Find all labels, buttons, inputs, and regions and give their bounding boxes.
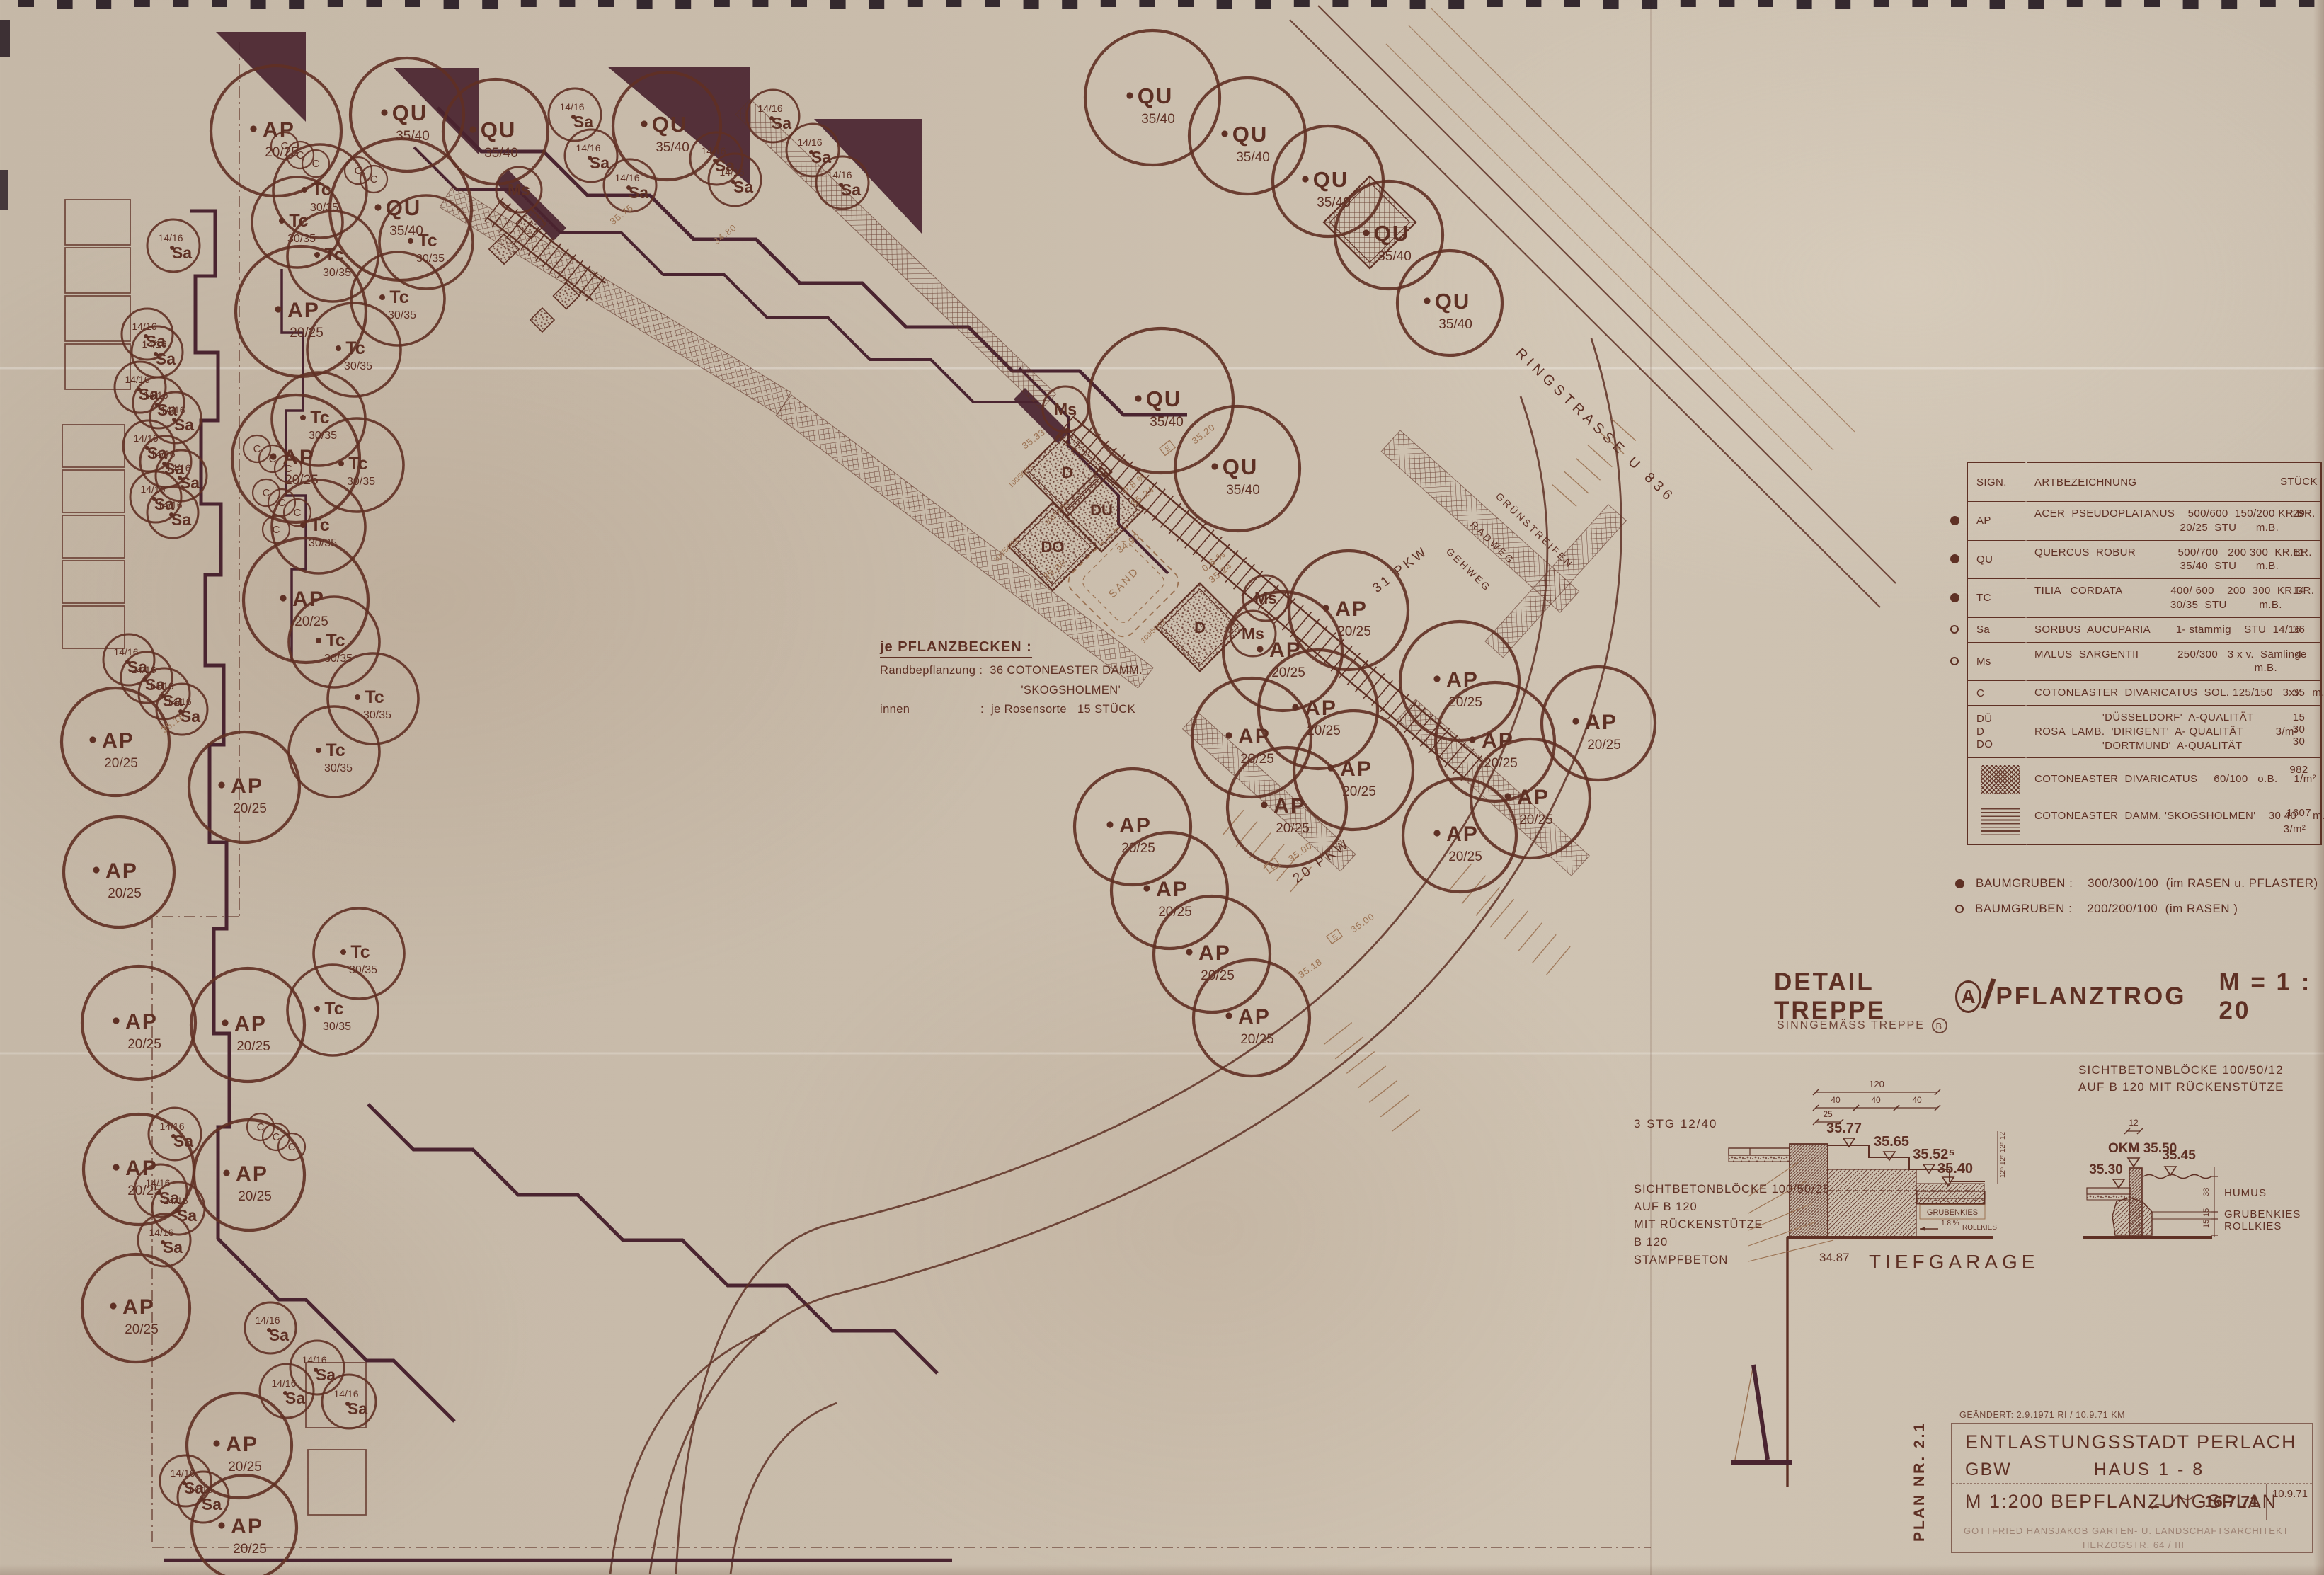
legend-row: MsMALUS SARGENTII 250/300 3 x v. Sämling…: [1942, 642, 2323, 681]
tree-symbol-sa: 14/16Sa: [138, 1214, 190, 1266]
tree-symbol-c: C: [247, 1113, 274, 1140]
svg-text:Sa: Sa: [172, 244, 192, 262]
svg-text:AP: AP: [1517, 786, 1550, 809]
svg-text:30/35: 30/35: [309, 537, 337, 549]
baumgruben-note-text: BAUMGRUBEN : 200/200/100 (im RASEN ): [1975, 902, 2238, 916]
svg-text:14/16: 14/16: [166, 696, 191, 707]
tree-pit-small-icon: [1942, 617, 1967, 642]
plan-date: 16.7.71: [2197, 1484, 2266, 1520]
svg-text:14/16: 14/16: [163, 1195, 188, 1206]
tree-pit-small-icon: [1942, 642, 1967, 681]
svg-text:AP: AP: [231, 1515, 263, 1538]
svg-text:20/25: 20/25: [228, 1460, 262, 1474]
legend-sign: TC: [1967, 578, 2027, 617]
legend-header-sign: SIGN.: [1967, 462, 2027, 501]
legend-no-marker: [1942, 801, 1967, 845]
tree-symbol-ap: AP20/25: [1154, 896, 1270, 1012]
signature-icon: [2148, 1484, 2197, 1520]
stair-a-marker-icon: A: [1955, 980, 1982, 1013]
svg-text:Ms: Ms: [508, 181, 530, 199]
svg-text:QU: QU: [1232, 122, 1269, 147]
tree-pit-large-icon: [1942, 540, 1967, 579]
legend-row: CCOTONEASTER DIVARICATUS SOL. 125/150 3x…: [1942, 680, 2323, 705]
svg-text:Ms: Ms: [1254, 589, 1277, 607]
svg-text:QU: QU: [392, 101, 428, 125]
svg-text:30/35: 30/35: [388, 309, 416, 321]
svg-text:GRUBENKIES: GRUBENKIES: [2224, 1208, 2301, 1220]
tree-symbol-sa: 14/16Sa: [245, 1302, 296, 1353]
legend-row: COTONEASTER DIVARICATUS 60/100 o.B. 1/m²…: [1942, 757, 2323, 801]
svg-text:40: 40: [1912, 1095, 1922, 1105]
svg-text:Sa: Sa: [590, 154, 609, 172]
svg-text:Sa: Sa: [177, 1206, 197, 1225]
concrete-block-label-line: B 120: [1634, 1234, 1830, 1252]
svg-text:TIEFGARAGE: TIEFGARAGE: [1869, 1251, 2039, 1273]
tree-symbol-qu: QU35/40: [1397, 251, 1502, 355]
client-label: GBW: [1965, 1460, 2012, 1480]
svg-text:Sa: Sa: [573, 113, 593, 131]
svg-text:14/16: 14/16: [157, 499, 182, 510]
svg-text:20/25: 20/25: [233, 1542, 267, 1557]
concrete-block-label-line: AUF B 120: [1634, 1198, 1830, 1216]
svg-text:20/25: 20/25: [125, 1322, 159, 1337]
svg-text:30/35: 30/35: [324, 762, 353, 774]
svg-text:20/25: 20/25: [1158, 905, 1192, 920]
planter-detail-heading-line2: AUF B 120 MIT RÜCKENSTÜTZE: [2078, 1079, 2284, 1096]
street-name-label: RINGSTRASSE U 836: [1513, 345, 1678, 506]
svg-text:120: 120: [1869, 1079, 1884, 1089]
legend-no-marker: [1942, 705, 1967, 757]
svg-text:AP: AP: [125, 1010, 158, 1033]
svg-text:AP: AP: [1446, 823, 1479, 846]
tree-symbol-tc: Tc30/35: [314, 908, 404, 999]
legend-sign: [1967, 801, 2027, 845]
svg-text:35.77: 35.77: [1826, 1121, 1862, 1136]
svg-text:Sa: Sa: [156, 350, 176, 368]
planter-edge-detail-drawing: 12OKM 35.5035.4535.3038HUMUS15GRUBENKIES…: [2083, 1118, 2301, 1239]
svg-text:20/25: 20/25: [104, 756, 138, 771]
svg-text:Tc: Tc: [324, 999, 343, 1019]
svg-text:20/25: 20/25: [1519, 813, 1553, 827]
svg-text:14/16: 14/16: [145, 1177, 170, 1189]
tree-symbol-qu: QU35/40: [1085, 30, 1220, 165]
tree-symbol-c: C: [302, 150, 329, 177]
svg-text:35/40: 35/40: [1236, 150, 1270, 165]
svg-text:DO: DO: [1041, 538, 1065, 556]
tree-symbol-ap: AP20/25: [1075, 769, 1191, 885]
svg-text:14/16: 14/16: [166, 462, 190, 474]
svg-text:AP: AP: [231, 774, 263, 798]
svg-text:20/25: 20/25: [236, 1039, 270, 1054]
svg-text:Sa: Sa: [171, 510, 191, 529]
svg-text:Ms: Ms: [1242, 624, 1264, 643]
legend-row: DÜDDO 'DÜSSELDORF' A-QUALITÄTROSA LAMB. …: [1942, 705, 2323, 757]
svg-text:AP: AP: [1119, 814, 1152, 837]
svg-text:14/16: 14/16: [302, 1354, 326, 1365]
stair-count-label: 3 STG 12/40: [1634, 1117, 1717, 1131]
svg-text:20/25: 20/25: [294, 614, 328, 629]
detail-scale-label: M = 1 : 20: [2219, 968, 2324, 1025]
detail-title-rest: PFLANZTROG: [1996, 983, 2186, 1011]
svg-text:AP: AP: [1238, 725, 1271, 748]
legend-sign: AP: [1967, 501, 2027, 540]
tree-symbol-ap: AP20/25: [1111, 832, 1227, 949]
tree-symbol-sa: 14/16Sa: [147, 219, 200, 272]
svg-text:12⁵: 12⁵: [1999, 1142, 2007, 1152]
pflanzbecken-note-line: Randbepflanzung : 36 COTONEASTER DAMM.: [880, 663, 1213, 678]
tree-pit-large-icon: [1942, 501, 1967, 540]
revision-date: 10.9.71: [2267, 1484, 2312, 1520]
svg-text:30/35: 30/35: [323, 1021, 351, 1033]
svg-text:14/16: 14/16: [271, 1378, 296, 1389]
features-layer: D100/50/12DÜ100/50/12DO100/50/12D100/50/…: [489, 176, 1416, 685]
svg-text:35/40: 35/40: [1438, 317, 1472, 332]
svg-text:40: 40: [1871, 1095, 1881, 1105]
legend-species-description: COTONEASTER DIVARICATUS SOL. 125/150 3xv…: [2027, 680, 2277, 705]
street-strip-label: GEHWEG: [1444, 546, 1494, 594]
north-arrow-icon: [1731, 1365, 1792, 1462]
tree-symbol-ap: AP20/25: [1542, 667, 1655, 780]
svg-text:AP: AP: [1198, 941, 1231, 965]
trees-layer: AP20/25AP20/25AP20/25AP20/25AP20/25AP20/…: [62, 30, 1655, 1575]
architect-stamp: GOTTFRIED HANSJAKOB GARTEN- U. LANDSCHAF…: [1952, 1520, 2312, 1552]
svg-text:20/25: 20/25: [1276, 821, 1310, 836]
svg-text:Sa: Sa: [772, 114, 791, 132]
tree-symbol-qu: QU35/40: [1175, 406, 1300, 531]
svg-text:QU: QU: [1146, 386, 1182, 411]
revision-note: GEÄNDERT: 2.9.1971 RI / 10.9.71 KM: [1959, 1410, 2125, 1420]
svg-text:AP: AP: [102, 729, 134, 752]
tree-symbol-sa: 14/16Sa: [549, 88, 601, 141]
detail-title-slash: /: [1980, 970, 1998, 1019]
legend-species-description: SORBUS AUCUPARIA 1- stämmig STU 14/16: [2027, 617, 2277, 642]
svg-text:14/16: 14/16: [614, 172, 639, 183]
svg-text:E: E: [1164, 445, 1172, 454]
elevation-label: 34.80: [711, 222, 739, 246]
svg-text:QU: QU: [1313, 167, 1349, 192]
svg-text:Tc: Tc: [350, 942, 370, 962]
tree-symbol-ap: AP20/25: [1294, 711, 1413, 830]
svg-text:QU: QU: [1223, 454, 1259, 479]
svg-text:AP: AP: [122, 1295, 155, 1319]
pflanzbecken-note-lines: Randbepflanzung : 36 COTONEASTER DAMM. '…: [880, 663, 1213, 717]
legend-species-description: 'DÜSSELDORF' A-QUALITÄTROSA LAMB. 'DIRIG…: [2027, 705, 2277, 757]
svg-text:14/16: 14/16: [559, 101, 584, 113]
svg-text:14/16: 14/16: [160, 404, 185, 416]
svg-text:20/25: 20/25: [238, 1189, 272, 1204]
svg-text:Sa: Sa: [348, 1399, 367, 1418]
svg-text:C: C: [312, 158, 320, 170]
sheet-marks-layer: [18, 0, 2314, 9]
tree-symbol-ap: AP20/25: [62, 688, 169, 796]
svg-text:Sa: Sa: [733, 178, 753, 196]
pflanzbecken-note-line: 'SKOGSHOLMEN': [880, 683, 1213, 698]
svg-text:QU: QU: [652, 112, 688, 137]
svg-text:14/16: 14/16: [701, 145, 726, 156]
elevation-label: 35.18: [1296, 956, 1324, 980]
svg-text:AP: AP: [226, 1433, 258, 1456]
svg-text:C: C: [285, 463, 292, 475]
pflanzbecken-note: je PFLANZBECKEN : Randbepflanzung : 36 C…: [880, 639, 1213, 717]
pflanzbecken-note-title: je PFLANZBECKEN :: [880, 639, 1032, 658]
svg-text:Tc: Tc: [348, 454, 367, 474]
planter-detail-heading-line1: SICHTBETONBLÖCKE 100/50/12: [2078, 1062, 2284, 1079]
svg-text:C: C: [370, 173, 378, 185]
svg-text:14/16: 14/16: [827, 169, 852, 181]
svg-text:Tc: Tc: [418, 231, 437, 251]
svg-text:AP: AP: [1585, 711, 1618, 734]
legend-sign: [1967, 757, 2027, 801]
baumgruben-notes: BAUMGRUBEN : 300/300/100 (im RASEN u. PF…: [1955, 876, 2318, 927]
elevation-marker: E: [1160, 440, 1176, 456]
svg-text:14/16: 14/16: [576, 142, 600, 154]
svg-text:D: D: [1062, 464, 1073, 481]
crosshatch-swatch-icon: [1981, 765, 2020, 794]
svg-text:ROLLKIES: ROLLKIES: [1962, 1224, 1997, 1232]
svg-text:20/25: 20/25: [108, 886, 142, 901]
svg-text:30/35: 30/35: [323, 267, 351, 279]
svg-text:14/16: 14/16: [158, 232, 183, 244]
svg-text:E: E: [1331, 933, 1339, 942]
legend-sign: Sa: [1967, 617, 2027, 642]
concrete-block-labels: SICHTBETONBLÖCKE 100/50/25AUF B 120MIT R…: [1634, 1181, 1830, 1269]
svg-text:14/16: 14/16: [255, 1315, 280, 1326]
tree-symbol-sa: 14/16Sa: [322, 1375, 376, 1428]
svg-text:14/16: 14/16: [149, 1227, 173, 1238]
detail-subtitle-text: SINNGEMÄSS TREPPE: [1777, 1019, 1925, 1032]
svg-text:Tc: Tc: [310, 515, 329, 535]
svg-text:Sa: Sa: [173, 1132, 193, 1150]
tree-symbol-c: C: [268, 489, 295, 516]
svg-text:40: 40: [1831, 1095, 1841, 1105]
tree-symbol-ap: AP20/25: [82, 966, 195, 1079]
tree-symbol-c: C: [278, 1133, 305, 1160]
svg-text:C: C: [294, 507, 302, 519]
legend-no-marker: [1942, 757, 1967, 801]
svg-text:12: 12: [2129, 1118, 2139, 1128]
parking-count-label: 31 PKW: [1370, 544, 1431, 596]
svg-text:35.30: 35.30: [2089, 1162, 2123, 1177]
legend-row: COTONEASTER DAMM. 'SKOGSHOLMEN' 30 40 m.…: [1942, 801, 2323, 845]
concrete-block-label-line: MIT RÜCKENSTÜTZE: [1634, 1216, 1830, 1234]
svg-text:Tc: Tc: [310, 408, 329, 428]
svg-text:Tc: Tc: [326, 631, 345, 651]
svg-text:35/40: 35/40: [1150, 415, 1184, 430]
svg-text:AP: AP: [1238, 1005, 1271, 1029]
tree-symbol-sa: 14/16Sa: [149, 1108, 201, 1160]
plan-number-label: PLAN NR. 2.1: [1911, 1409, 1933, 1554]
legend-header-art: ARTBEZEICHNUNG: [2027, 462, 2277, 501]
svg-text:20/25: 20/25: [233, 801, 267, 816]
svg-text:DÜ: DÜ: [1090, 501, 1113, 519]
svg-text:35.52⁵: 35.52⁵: [1913, 1147, 1954, 1162]
svg-text:C: C: [273, 524, 280, 536]
svg-text:35/40: 35/40: [1141, 112, 1175, 127]
tree-symbol-ap: AP20/25: [82, 1254, 190, 1362]
svg-text:30/35: 30/35: [324, 653, 353, 665]
tree-pit-large-icon: [1942, 578, 1967, 617]
svg-text:AP: AP: [234, 1012, 267, 1036]
svg-text:12: 12: [1999, 1131, 2007, 1140]
svg-text:15: 15: [2202, 1208, 2211, 1217]
svg-text:AP: AP: [236, 1162, 268, 1186]
legend-no-marker: [1942, 680, 1967, 705]
svg-text:QU: QU: [1435, 289, 1471, 314]
svg-text:20/25: 20/25: [1448, 849, 1482, 864]
svg-text:14/16: 14/16: [719, 166, 744, 178]
svg-text:AP: AP: [287, 299, 320, 322]
svg-text:30/35: 30/35: [344, 360, 372, 372]
svg-text:Sa: Sa: [285, 1389, 305, 1407]
legend-sign: QU: [1967, 540, 2027, 579]
tree-symbol-ap: AP20/25: [194, 1120, 304, 1230]
svg-text:20/25: 20/25: [1337, 624, 1371, 639]
tree-symbol-sa: 14/16Sa: [565, 130, 617, 182]
legend-row: TCTILIA CORDATA 400/ 600 200 300 KR.BR. …: [1942, 578, 2323, 617]
svg-text:D: D: [1194, 619, 1206, 636]
planter-detail-heading: SICHTBETONBLÖCKE 100/50/12 AUF B 120 MIT…: [2078, 1062, 2284, 1096]
svg-text:14/16: 14/16: [142, 338, 166, 350]
svg-text:Sa: Sa: [629, 183, 648, 202]
svg-text:Sa: Sa: [163, 1238, 183, 1256]
svg-text:Sa: Sa: [269, 1326, 289, 1344]
svg-text:14/16: 14/16: [757, 103, 782, 114]
legend-species-description: COTONEASTER DAMM. 'SKOGSHOLMEN' 30 40 m.…: [2027, 801, 2277, 845]
tree-symbol-ms: Ms: [1043, 386, 1088, 432]
concrete-block-label-line: SICHTBETONBLÖCKE 100/50/25: [1634, 1181, 1830, 1198]
elevation-marker: E: [1327, 929, 1343, 944]
svg-text:Tc: Tc: [326, 740, 345, 760]
architect-name-line: GOTTFRIED HANSJAKOB GARTEN- U. LANDSCHAF…: [1964, 1524, 2303, 1538]
tree-symbol-c: C: [244, 435, 270, 462]
svg-text:AP: AP: [263, 118, 295, 142]
legend-sign: DÜDDO: [1967, 705, 2027, 757]
tree-pit-small-icon: [1955, 905, 1964, 913]
svg-text:C: C: [288, 1141, 296, 1153]
svg-text:Tc: Tc: [345, 338, 365, 358]
svg-text:Tc: Tc: [324, 245, 343, 265]
tree-symbol-ap: AP20/25: [1403, 779, 1516, 892]
svg-text:HUMUS: HUMUS: [2224, 1187, 2267, 1199]
pflanzbecken-note-line: innen : je Rosensorte 15 STÜCK: [880, 702, 1213, 717]
svg-text:QU: QU: [1374, 221, 1410, 246]
svg-text:GRUBENKIES: GRUBENKIES: [1927, 1208, 1978, 1217]
small-planter: [530, 308, 554, 332]
svg-text:SAND: SAND: [1106, 565, 1142, 600]
legend-row: QUQUERCUS ROBUR 500/700 200 300 KR.BR. 3…: [1942, 540, 2323, 579]
detail-section-title: DETAIL TREPPE A / PFLANZTROG M = 1 : 20: [1774, 968, 2324, 1025]
architect-address-line: HERZOGSTR. 64 / III: [1964, 1538, 2303, 1552]
svg-text:Tc: Tc: [389, 287, 408, 307]
svg-text:35/40: 35/40: [484, 146, 518, 161]
legend-header-row: SIGN.ARTBEZEICHNUNGSTÜCK: [1942, 462, 2323, 501]
svg-text:AP: AP: [1273, 794, 1306, 818]
hlines-swatch-icon: [1981, 808, 2020, 837]
baumgruben-note-text: BAUMGRUBEN : 300/300/100 (im RASEN u. PF…: [1976, 876, 2318, 890]
tree-symbol-c: C: [253, 479, 280, 506]
title-block-project-row: ENTLASTUNGSSTADT PERLACH GBW HAUS 1 - 8: [1952, 1424, 2312, 1484]
svg-text:30/35: 30/35: [347, 476, 375, 488]
svg-text:20/25: 20/25: [1240, 1032, 1274, 1047]
svg-text:ROLLKIES: ROLLKIES: [2224, 1220, 2282, 1232]
svg-text:Sa: Sa: [841, 181, 861, 199]
house-range-label: HAUS 1 - 8: [2094, 1460, 2204, 1480]
svg-text:QU: QU: [386, 195, 422, 220]
detail-title-text: DETAIL TREPPE: [1774, 968, 1948, 1025]
svg-text:14/16: 14/16: [188, 1484, 212, 1495]
svg-text:12⁵: 12⁵: [1999, 1167, 2007, 1178]
legend-sign: C: [1967, 680, 2027, 705]
tree-symbol-ap: AP20/25: [1194, 960, 1310, 1076]
svg-text:QU: QU: [481, 118, 517, 142]
svg-text:20/25: 20/25: [1484, 756, 1518, 771]
plant-legend-table: SIGN.ARTBEZEICHNUNGSTÜCKAPACER PSEUDOPLA…: [1942, 462, 2323, 845]
elevation-label: 35.33: [1020, 426, 1048, 451]
svg-text:QU: QU: [1138, 84, 1174, 108]
svg-text:35/40: 35/40: [1378, 249, 1412, 264]
tree-symbol-ap: AP20/25: [1400, 622, 1519, 740]
elevation-label: 35.00: [1349, 911, 1376, 935]
svg-text:Sa: Sa: [202, 1495, 222, 1513]
legend-sign: Ms: [1967, 642, 2027, 681]
legend-row: SaSORBUS AUCUPARIA 1- stämmig STU 14/163…: [1942, 617, 2323, 642]
title-block: ENTLASTUNGSSTADT PERLACH GBW HAUS 1 - 8 …: [1951, 1423, 2313, 1553]
svg-text:14/16: 14/16: [797, 137, 822, 148]
svg-text:Sa: Sa: [811, 148, 831, 166]
svg-text:AP: AP: [1156, 878, 1189, 901]
svg-text:AP: AP: [1446, 668, 1479, 692]
scanned-planting-plan-sheet: { "palette":{"paper":"#c9bcab","ink":"#5…: [0, 0, 2324, 1575]
baumgruben-note: BAUMGRUBEN : 200/200/100 (im RASEN ): [1955, 902, 2318, 916]
concrete-block-label-line: STAMPFBETON: [1634, 1252, 1830, 1269]
tree-symbol-c: C: [345, 157, 372, 184]
sheet-edge-shade-bottom: [0, 1564, 2324, 1575]
svg-text:35.65: 35.65: [1874, 1134, 1909, 1150]
svg-text:35.45: 35.45: [2162, 1148, 2196, 1163]
tree-pit-large-icon: [1955, 879, 1964, 888]
stair-b-marker-icon: B: [1932, 1018, 1947, 1033]
svg-text:14/16: 14/16: [170, 1467, 195, 1479]
tree-symbol-ap: AP20/25: [64, 817, 174, 927]
tree-symbol-ap: AP20/25: [189, 732, 299, 842]
svg-text:15: 15: [2202, 1220, 2211, 1228]
detail-subtitle: SINNGEMÄSS TREPPE B: [1777, 1018, 1947, 1033]
svg-text:35/40: 35/40: [1226, 483, 1260, 498]
legend-species-description: MALUS SARGENTII 250/300 3 x v. Sämlinge …: [2027, 642, 2277, 681]
svg-text:14/16: 14/16: [159, 1121, 184, 1132]
svg-text:35/40: 35/40: [656, 140, 689, 155]
svg-text:14/16: 14/16: [333, 1388, 358, 1399]
svg-text:AP: AP: [1340, 757, 1373, 781]
sheet-edge-shade-right: [2313, 0, 2324, 1575]
baumgruben-note: BAUMGRUBEN : 300/300/100 (im RASEN u. PF…: [1955, 876, 2318, 890]
svg-text:14/16: 14/16: [131, 664, 156, 675]
legend-species-description: COTONEASTER DIVARICATUS 60/100 o.B. 1/m²: [2027, 757, 2277, 801]
legend-species-description: TILIA CORDATA 400/ 600 200 300 KR.BR. 30…: [2027, 578, 2277, 617]
svg-text:AP: AP: [1305, 697, 1337, 720]
svg-text:AP: AP: [105, 859, 138, 883]
svg-text:AP: AP: [1335, 597, 1368, 621]
svg-text:12⁵: 12⁵: [1999, 1155, 2007, 1165]
svg-text:35.40: 35.40: [1937, 1161, 1973, 1176]
svg-text:1.8 %: 1.8 %: [1941, 1220, 1959, 1227]
svg-text:20/25: 20/25: [1587, 738, 1621, 752]
svg-text:Sa: Sa: [174, 416, 194, 434]
svg-text:20/25: 20/25: [290, 326, 324, 340]
legend-species-description: QUERCUS ROBUR 500/700 200 300 KR.BR. 35/…: [2027, 540, 2277, 579]
svg-text:Tc: Tc: [365, 687, 384, 707]
legend-row: APACER PSEUDOPLATANUS 500/600 150/200 KR…: [1942, 501, 2323, 540]
